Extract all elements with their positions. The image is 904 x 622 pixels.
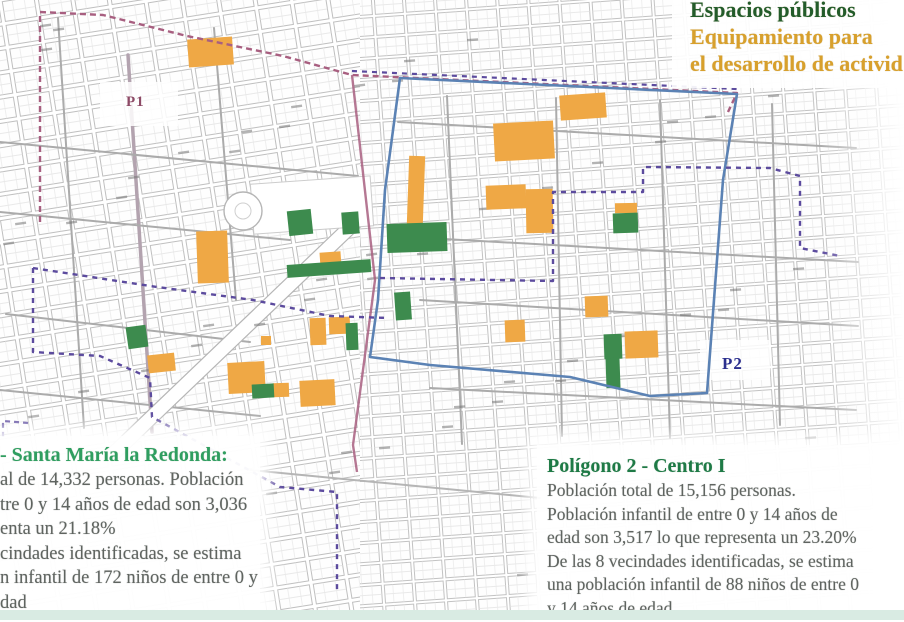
panel-poligono-2: Polígono 2 - Centro I Población total de… xyxy=(537,445,904,622)
espacio-publico-block xyxy=(605,358,620,388)
panel-poligono-1: - Santa María la Redonda: al de 14,332 p… xyxy=(0,436,260,610)
espacio-publico-block xyxy=(341,211,359,234)
espacio-publico-block xyxy=(387,222,448,253)
poligono-1-text-line: enta un 21.18% xyxy=(0,517,256,542)
equipamiento-block xyxy=(526,189,554,233)
title-line-desarrollo: el desarrollo de activid xyxy=(690,50,904,77)
poligono-1-text-line: n infantil de 172 niños de entre 0 y xyxy=(0,566,256,591)
equipamiento-block xyxy=(310,318,327,346)
poligono-1-heading: - Santa María la Redonda: xyxy=(0,442,256,468)
equipamiento-block xyxy=(273,383,289,398)
equipamiento-block xyxy=(486,184,527,209)
espacio-publico-block xyxy=(394,291,412,320)
equipamiento-block xyxy=(615,203,637,213)
polygon-2-label: P2 xyxy=(722,354,743,374)
slide-title: Espacios públicos Equipamiento para el d… xyxy=(690,0,904,77)
espacio-publico-block xyxy=(604,334,623,360)
equipamiento-block xyxy=(261,336,271,345)
espacio-publico-block xyxy=(346,323,359,350)
equipamiento-block xyxy=(147,353,176,374)
poligono-1-text-line: tre 0 y 14 años de edad son 3,036 xyxy=(0,493,256,518)
equipamiento-block xyxy=(559,92,607,120)
poligono-2-text-line: Población total de 15,156 personas. xyxy=(547,479,904,503)
equipamiento-block xyxy=(407,156,425,225)
poligono-2-text-line: edad son 3,517 lo que representa un 23.2… xyxy=(547,526,904,550)
espacio-publico-block xyxy=(287,209,313,236)
equipamiento-block xyxy=(625,330,659,358)
equipamiento-block xyxy=(299,379,335,407)
equipamiento-block xyxy=(196,230,229,283)
espacio-publico-block xyxy=(613,213,639,234)
equipamiento-block xyxy=(493,120,555,161)
poligono-2-heading: Polígono 2 - Centro I xyxy=(547,453,904,479)
equipamiento-block xyxy=(505,320,526,343)
poligono-1-text-line: cindades identificadas, se estima xyxy=(0,542,256,567)
espacio-publico-block xyxy=(126,325,149,350)
poligono-1-text-line: al de 14,332 personas. Población xyxy=(0,468,256,493)
espacio-publico-block xyxy=(252,383,275,398)
poligono-2-text-line: una población infantil de 88 niños de en… xyxy=(547,573,904,597)
slide: P1 P2 Espacios públicos Equipamiento par… xyxy=(0,0,904,620)
equipamiento-block xyxy=(585,296,609,318)
footer-accent-bar xyxy=(0,610,904,620)
title-line-equipamiento: Equipamiento para xyxy=(690,23,904,50)
roundabout xyxy=(224,192,262,230)
polygon-1-label: P1 xyxy=(126,94,145,111)
poligono-2-text-line: Población infantil de entre 0 y 14 años … xyxy=(547,503,904,527)
title-line-espacios: Espacios públicos xyxy=(690,0,904,23)
poligono-2-text-line: De las 8 vecindades identificadas, se es… xyxy=(547,550,904,574)
